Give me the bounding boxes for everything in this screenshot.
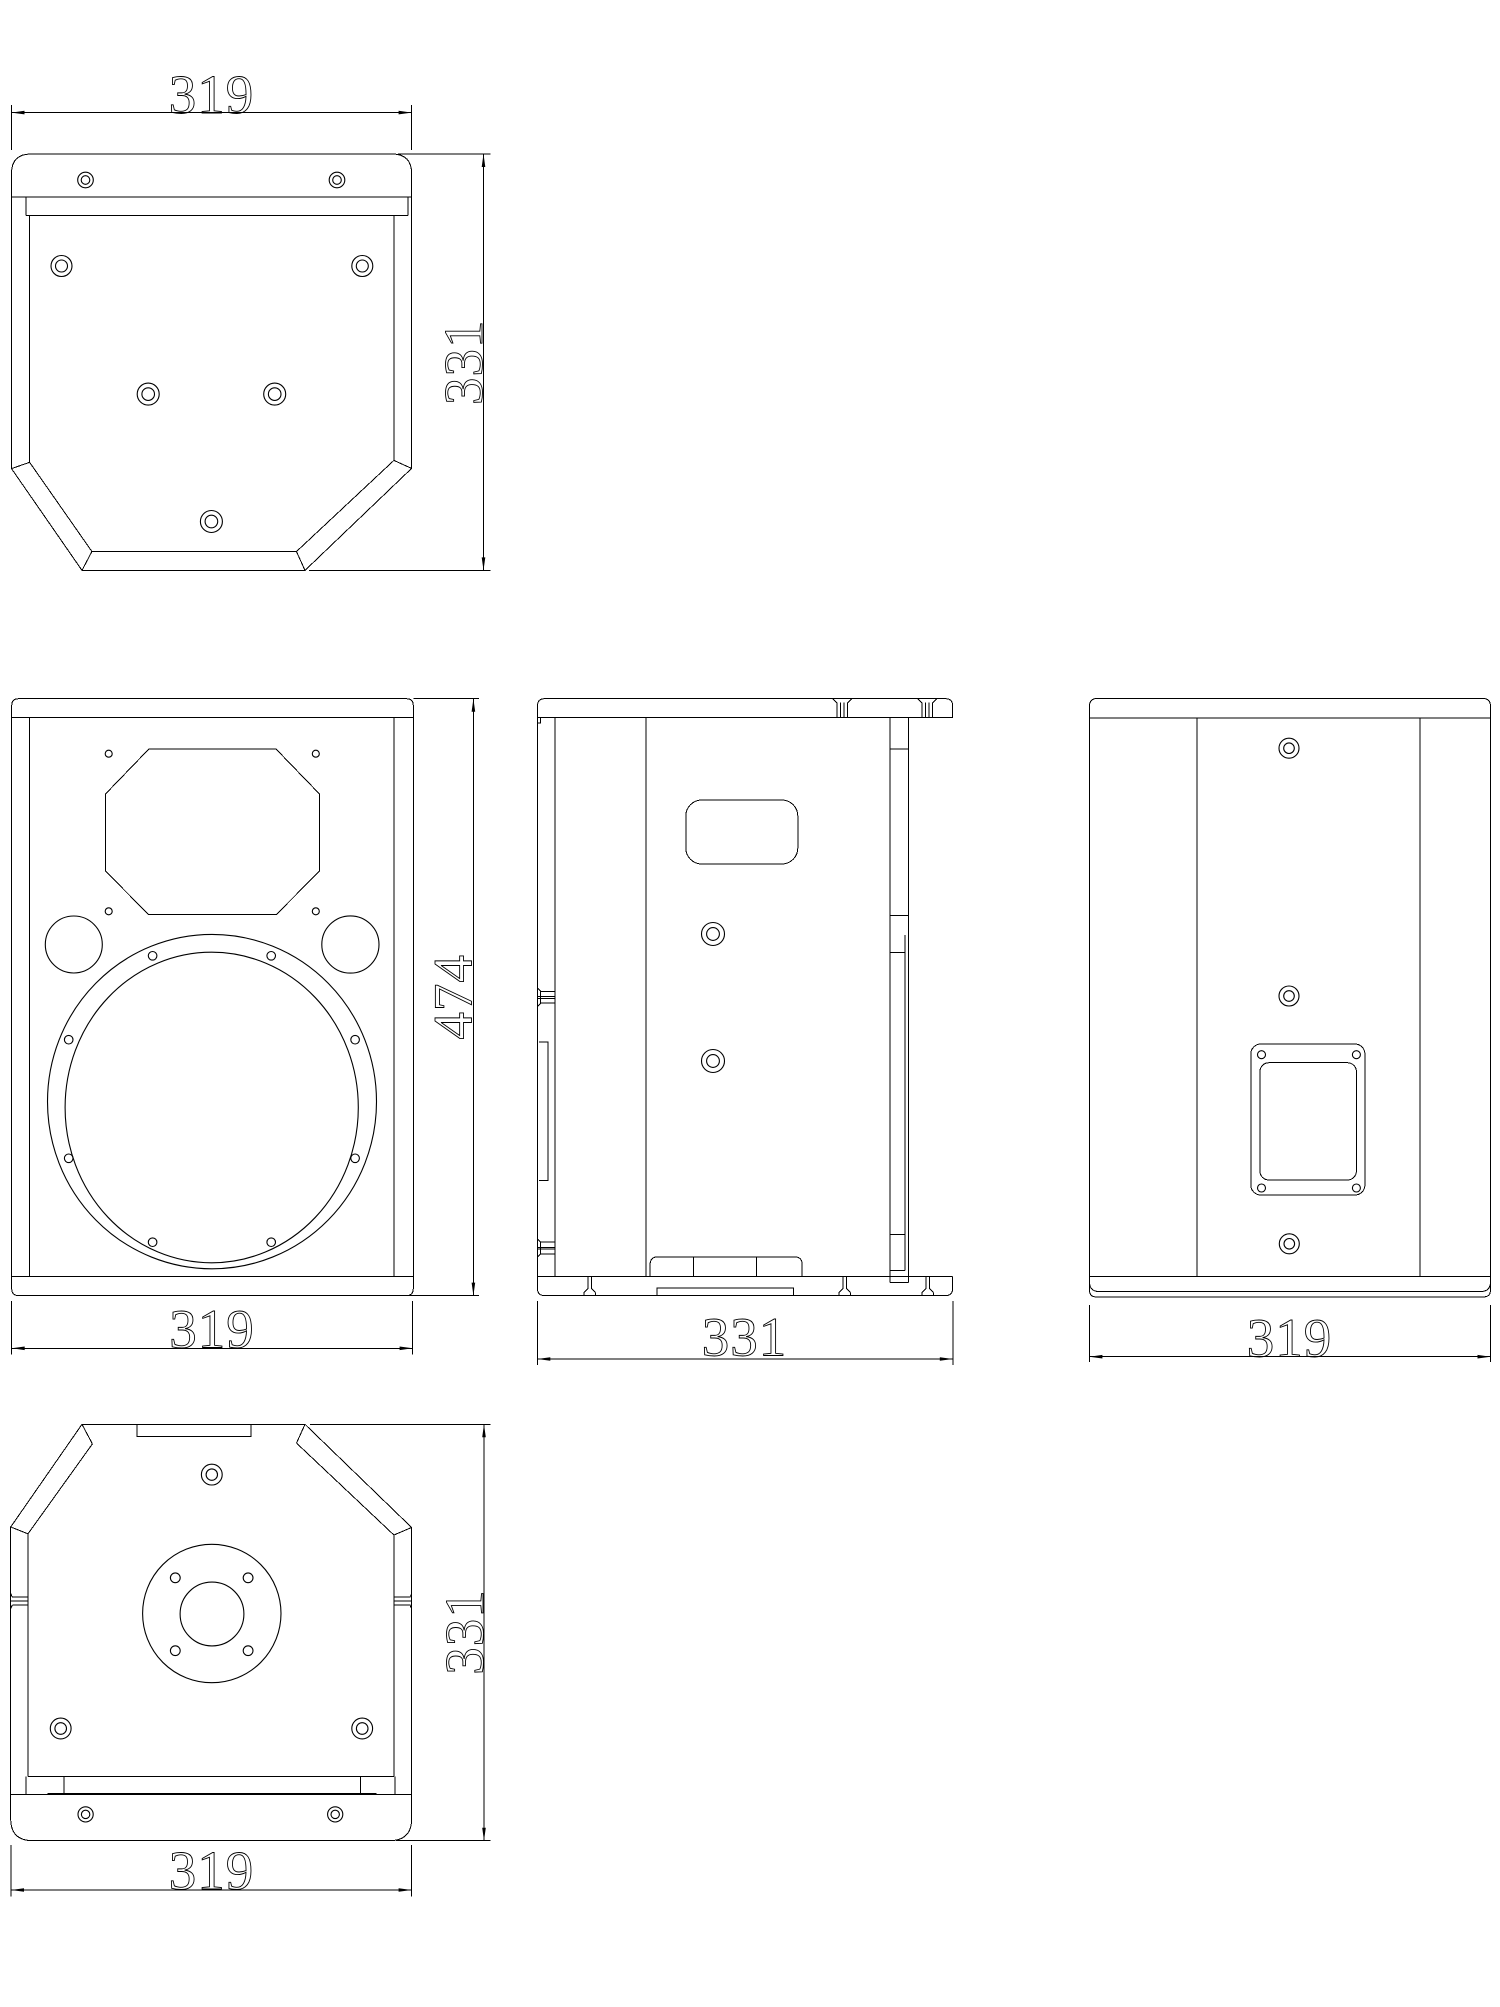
svg-text:331: 331 [433,320,494,406]
svg-text:331: 331 [702,1307,788,1368]
svg-text:319: 319 [169,1299,255,1360]
svg-text:319: 319 [169,64,255,125]
svg-text:319: 319 [1247,1308,1333,1369]
svg-text:319: 319 [169,1840,255,1901]
svg-text:331: 331 [434,1589,495,1675]
svg-text:474: 474 [423,954,484,1040]
